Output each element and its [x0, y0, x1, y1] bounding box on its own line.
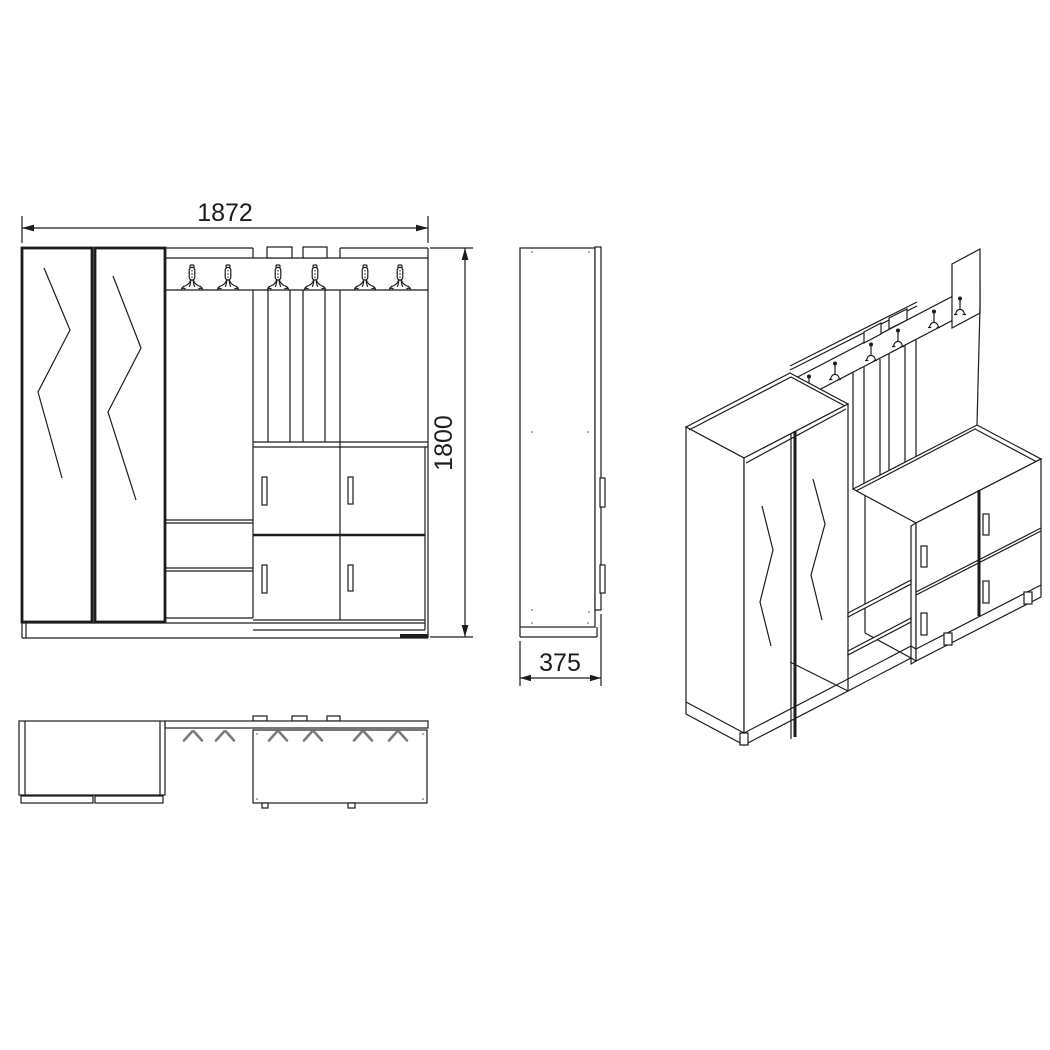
door-handle [348, 565, 353, 591]
iso-shelf [848, 618, 911, 655]
door-handle [262, 565, 267, 593]
plinth-base [22, 622, 428, 638]
door-handle [921, 613, 927, 635]
iso-base-front-edges [848, 646, 916, 691]
coat-hook-icon [182, 265, 203, 289]
door-front-strip [21, 796, 93, 803]
coat-hook-icon [355, 265, 376, 289]
iso-open-shelves [848, 580, 916, 691]
coat-hook-icon [390, 265, 411, 289]
cabinet-footprint [253, 730, 427, 803]
door-handle [262, 477, 267, 505]
door-handle [983, 581, 989, 603]
coat-hook-icon [218, 265, 239, 289]
slat-plan-tab [253, 716, 267, 721]
coat-hook-icon [184, 731, 202, 740]
side-plinth [520, 627, 597, 637]
iso-cabinet [853, 425, 1041, 664]
slat-plan-tab [292, 716, 307, 721]
depth-dimension-label: 375 [539, 649, 581, 677]
back-panel-strip [165, 721, 428, 728]
iso-cabinet-foot [1024, 592, 1032, 604]
dimension-height: 1800 [430, 248, 473, 637]
mirror-door-left [22, 248, 92, 622]
technical-drawing-canvas: 1872 [0, 0, 1050, 1050]
coat-hook-icon [268, 265, 289, 289]
hook-rail [165, 247, 428, 290]
door-front-strip [95, 796, 163, 803]
slat-plan-tab [327, 716, 340, 721]
iso-shelf [848, 580, 911, 617]
shoe-cabinet-front [253, 442, 428, 630]
width-dimension-label: 1872 [197, 199, 253, 227]
iso-wardrobe-foot [740, 733, 748, 745]
side-view: 375 [520, 247, 605, 686]
mirror-door-right [95, 248, 165, 622]
cabinet-foot-plan [262, 803, 268, 808]
door-handle-side [600, 565, 605, 593]
door-handle [983, 514, 989, 535]
iso-back-panel-right-edge [977, 306, 980, 425]
open-shelf-section-lines [165, 290, 253, 618]
slat-top-tab [303, 247, 327, 258]
slat-top-tab [267, 247, 292, 258]
door-handle [348, 477, 353, 504]
front-edge-strip [595, 247, 601, 610]
iso-view [686, 249, 1041, 745]
dimension-width: 1872 [22, 199, 428, 243]
door-handle-side [600, 478, 605, 507]
iso-right-back-panel [952, 249, 980, 328]
cabinet-foot [400, 634, 428, 638]
front-view: 1872 [22, 199, 473, 638]
door-handle [921, 546, 927, 567]
side-panel [520, 248, 595, 627]
coat-hook-icon [216, 731, 234, 740]
coat-hook-icon [305, 265, 326, 289]
iso-cabinet-left-edge [911, 523, 916, 664]
height-dimension-label: 1800 [430, 415, 458, 471]
coat-hooks-front [182, 265, 411, 289]
furniture-dimension-drawing: 1872 [0, 0, 1050, 1050]
cabinet-foot-plan [348, 803, 355, 808]
iso-wardrobe [686, 373, 848, 745]
back-slats [268, 290, 340, 447]
plan-view [19, 716, 428, 808]
iso-wardrobe-left-side [686, 427, 744, 745]
iso-cabinet-foot [944, 633, 952, 645]
wardrobe-footprint [19, 721, 165, 795]
